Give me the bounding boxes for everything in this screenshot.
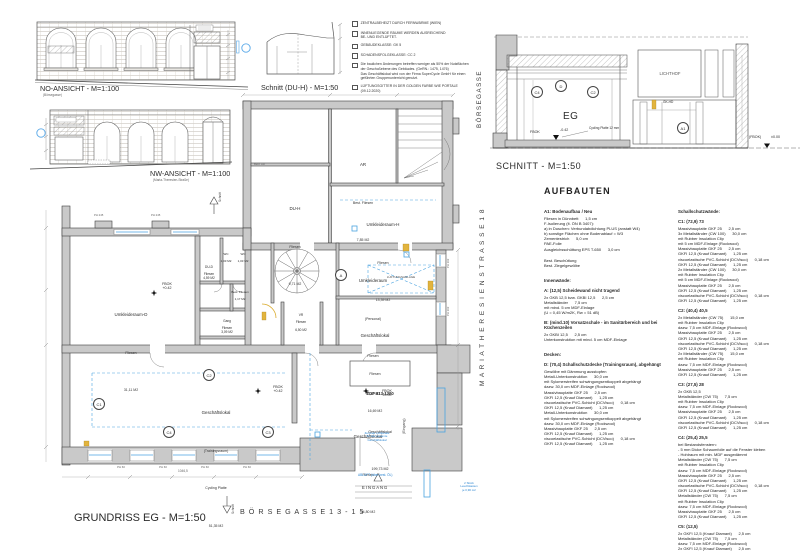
checkbox-icon	[352, 21, 358, 27]
spec-heading: Innenwände:	[544, 278, 669, 283]
marker-a1-schnitt: A1	[677, 122, 689, 134]
eg-level-label: EG	[563, 111, 578, 123]
room-name: DU-H	[290, 206, 301, 211]
level-fbok-042-mid: FBOK +0.42	[152, 282, 182, 290]
spec-body: 2x GKBI 12,5 2,5 cm Unterkonstruktion mi…	[544, 332, 669, 342]
level-fbok-042-bottom: FBOK +0.42	[263, 385, 293, 393]
room-area: 3,09 M2	[221, 330, 233, 334]
room-name: Gang	[223, 319, 231, 323]
marker-c1-plan: C1	[93, 398, 105, 410]
room-label-wc2: WC 1,03 M2	[231, 249, 255, 263]
note-text: ZENTRALBEHEIZT DURCH FERNWÄRME (WIEN)	[361, 21, 442, 27]
pillar-ph60-label: PH 60	[111, 466, 131, 469]
level-fbok-000: FBOK ±0.00	[372, 389, 402, 397]
checkbox-icon	[352, 53, 358, 59]
spec-heading: C4: (25,4) 25,5	[678, 435, 798, 440]
checkbox-icon	[352, 85, 358, 91]
pillar-ph102-label: PH 102	[447, 300, 450, 316]
room-area: 1,03 M2	[221, 259, 232, 263]
room-name: Umkleideraum-D	[115, 312, 148, 317]
spec-heading: B: (mind.10) Vorsatzschale - im Sanitärb…	[544, 320, 669, 330]
room-area: 1,03 M2	[238, 259, 249, 263]
marker-c4-plan: C4	[163, 426, 175, 438]
room-area: 9,71 M2	[289, 282, 302, 286]
spec-body: Fliesen in Dünnbett 1,5 cm F-Isolierung …	[544, 216, 669, 252]
note-item: SCHADENSFOLGEKLASSE: CC 2	[352, 53, 510, 59]
room-finish: Cycling Platte	[205, 486, 226, 490]
spec-heading: C3: (27,5) 28	[678, 382, 798, 387]
room-finish: Fliesen	[289, 245, 300, 249]
spec-body: Massivbauplatte GKF 25 2,5 cm 3x Metalls…	[678, 226, 798, 304]
pillar-ph245-label: PH 245	[151, 214, 160, 217]
spec-heading: D: (70,4) Schallschutzdecke (Trainingsra…	[544, 362, 669, 367]
room-label-vr: VR Fliesen 6,50 M2	[281, 310, 321, 333]
top-unit-area: 199,73 M2	[372, 467, 389, 471]
fbok-right-value: ±0.00	[771, 135, 780, 139]
schnitt-marker-bottom-label: Schnitt	[232, 498, 236, 514]
eingang-label: EINGANG	[362, 486, 388, 491]
best-ar-label: Best. AR	[254, 163, 265, 166]
spec-body: Best. Beschüttung Best. Ziegelgewölbe	[544, 258, 669, 268]
boersegasse-13-15-label: B Ö R S E G A S S E 1 3 - 1 5	[240, 508, 364, 516]
aufbauten-left-column: A1: Bodenaufbau / Neu Fliesen in Dünnbet…	[544, 204, 669, 552]
room-label-dud: DU-D Fliesen 4,59 M2	[187, 262, 231, 281]
abluft-note: ABLUFT (über best. ÖL)	[358, 474, 393, 478]
spec-body: 2x GKB 12,5 Metallständer (CW 75) 7,5 cm…	[678, 389, 798, 431]
spec-heading: Decken:	[544, 352, 669, 357]
dim-total-label: 1046,5	[178, 470, 188, 474]
spec-body: 2x GKFI 12,5 (Knauf Diamant) 2,5 cm Meta…	[678, 531, 798, 552]
note-text: GEBÄUDEKLASSE: GK 5	[361, 43, 402, 49]
fbok-left-value: -0.42	[560, 128, 568, 132]
note-text: LÜFTUNGSGITTER IN DER GOLDEN FARBE WIE P…	[361, 84, 458, 93]
elevation-nw-subtitle: (Maria-Theresien-Straße)	[153, 179, 189, 183]
lichthof-label: LICHTHOF	[640, 72, 700, 77]
room-sub: (Trainingsraum)	[204, 449, 229, 453]
spec-body: 2x GKB 12,5 bzw. GKBI 12,5 2,5 cm Metall…	[544, 295, 669, 316]
note-item: GEBÄUDEKLASSE: GK 5	[352, 43, 510, 49]
grundriss-title: GRUNDRISS EG - M=1:50	[74, 512, 206, 525]
schnitt-title: SCHNITT - M=1:50	[496, 161, 581, 172]
room-finish: Fliesen	[296, 320, 306, 324]
checkbox-icon	[352, 44, 358, 50]
checkbox-icon	[352, 31, 358, 37]
marker-c2-schnitt: C2	[587, 86, 599, 98]
room-label-duh: DU-H Fliesen 9,71 M2	[265, 178, 325, 291]
elevation-no-subtitle: (Börsegasse)	[43, 94, 62, 98]
aufbauten-spec-panel: AUFBAUTEN A1: Bodenaufbau / Neu Fliesen …	[544, 186, 798, 552]
spec-heading: Schallschutzwände:	[678, 209, 798, 214]
room-area: 1,17 M2	[235, 297, 246, 301]
note-text: INNENLIEGENDE RÄUME WERDEN AUSREICHEND B…	[361, 31, 446, 40]
room-name: Geschäftslokal	[361, 333, 390, 338]
schnitt-duh-drawing	[267, 22, 342, 74]
marker-c2-plan: C2	[203, 369, 215, 381]
room-label-gang: Gang Fliesen 3,09 M2	[207, 316, 247, 335]
room-name: Umkleideraum-H	[367, 222, 400, 227]
cycling-platte-note: Cycling Platte 12 mm	[589, 127, 619, 131]
aufbauten-title: AUFBAUTEN	[544, 186, 798, 196]
room-area: 31,11 M2	[124, 388, 138, 392]
room-area: 4,59 M2	[203, 276, 215, 280]
room-label-umkleideraum-d: Umkleideraum-D Fliesen 31,11 M2	[86, 284, 176, 397]
room-name: VR	[299, 313, 303, 317]
note-item: Die baulichen Änderungen betreffen wenig…	[352, 62, 510, 80]
note-item: INNENLIEGENDE RÄUME WERDEN AUSREICHEND B…	[352, 31, 510, 40]
pillar-ph60-label: PH 60	[237, 466, 257, 469]
pillar-ph60-label: PH 60	[153, 466, 173, 469]
fbok-right-label: (FBOK)	[749, 135, 761, 139]
room-finish: Fliesen	[125, 351, 136, 355]
pillar-ph60-label: PH 60	[195, 466, 215, 469]
gkhd-label: GK-HD	[663, 101, 673, 105]
room-name: Geschäftslokal	[202, 410, 231, 415]
spec-heading: C5: (12,5)	[678, 524, 798, 529]
checkbox-icon	[352, 63, 358, 69]
room-name: DU-D	[205, 265, 213, 269]
room-name: WC	[241, 252, 246, 256]
drawing-sheet: NO-ANSICHT - M=1:100 (Börsegasse) NW-ANS…	[0, 0, 800, 555]
room-area: 51,35 M2	[209, 524, 224, 528]
elevation-nw-drawing	[30, 110, 232, 169]
spec-heading: A1: Bodenaufbau / Neu	[544, 209, 669, 214]
room-name: WC	[224, 252, 229, 256]
spec-heading: C1: (72,9) 73	[678, 219, 798, 224]
spec-body: 2x Metallständer (CW 75) 15,0 cm mit Rub…	[678, 315, 798, 377]
spec-body: bei Bestandsfenstern: - 5 mm Dicke Schau…	[678, 442, 798, 520]
room-name: Best. Fliesen	[231, 290, 248, 294]
boersegasse-street-label: BÖRSEGASSE	[476, 42, 483, 128]
pillar-ph245-label: PH 245	[94, 214, 103, 217]
room-area: 6,50 M2	[295, 328, 307, 332]
eingang-vertical-label: (Eingang)	[402, 392, 406, 434]
marker-c3-plan: C3	[262, 426, 274, 438]
note-item: ZENTRALBEHEIZT DURCH FERNWÄRME (WIEN)	[352, 21, 510, 27]
maria-theresien-street-label: M A R I A T H E R E S I E N S T R A S S …	[479, 208, 487, 386]
spec-heading: C2: (40,4) 40,5	[678, 308, 798, 313]
room-name: AR	[360, 162, 366, 167]
marker-d-schnitt: D	[555, 80, 567, 92]
pillar-ph102-label: PH 102	[447, 252, 450, 268]
elevation-no-drawing	[35, 22, 250, 90]
note-item: LÜFTUNGSGITTER IN DER GOLDEN FARBE WIE P…	[352, 84, 510, 93]
lueftungsanlage-label: LÜFTUNGSANLAGE	[370, 276, 432, 280]
zentrale-lueftung-note: Zentrale Lüftkanäle für das gesamte Gesc…	[348, 432, 406, 442]
spec-body: Gewölbe mit Dämmung ausstopfen Metall-Un…	[544, 369, 669, 447]
leuchtkasten-note: 2 Stück Leuchtkasten je 0,90 m2	[448, 482, 490, 492]
schnitt-marker-top-label: Schnitt	[219, 186, 223, 202]
marker-a-plan: A	[335, 269, 347, 281]
aufbauten-right-column: Schallschutzwände: C1: (72,9) 73 Massivb…	[678, 204, 798, 552]
schnitt-duh-title: Schnitt (DU-H) - M=1:50	[261, 84, 338, 92]
fbok-left-label: FBOK	[530, 130, 540, 134]
general-notes: ZENTRALBEHEIZT DURCH FERNWÄRME (WIEN) IN…	[352, 21, 510, 97]
top-unit-box-label: TOP 813-1300 Geschäftslokal 199,73 M2	[350, 363, 410, 476]
note-text: Die baulichen Änderungen betreffen wenig…	[361, 62, 469, 80]
room-label-best-fliesen: Best. Fliesen 1,17 M2	[225, 287, 255, 301]
spec-heading: A: (12,5) Scheidewand nicht tragend	[544, 288, 669, 293]
marker-c4-schnitt: C4	[531, 86, 543, 98]
note-text: SCHADENSFOLGEKLASSE: CC 2	[361, 53, 416, 59]
